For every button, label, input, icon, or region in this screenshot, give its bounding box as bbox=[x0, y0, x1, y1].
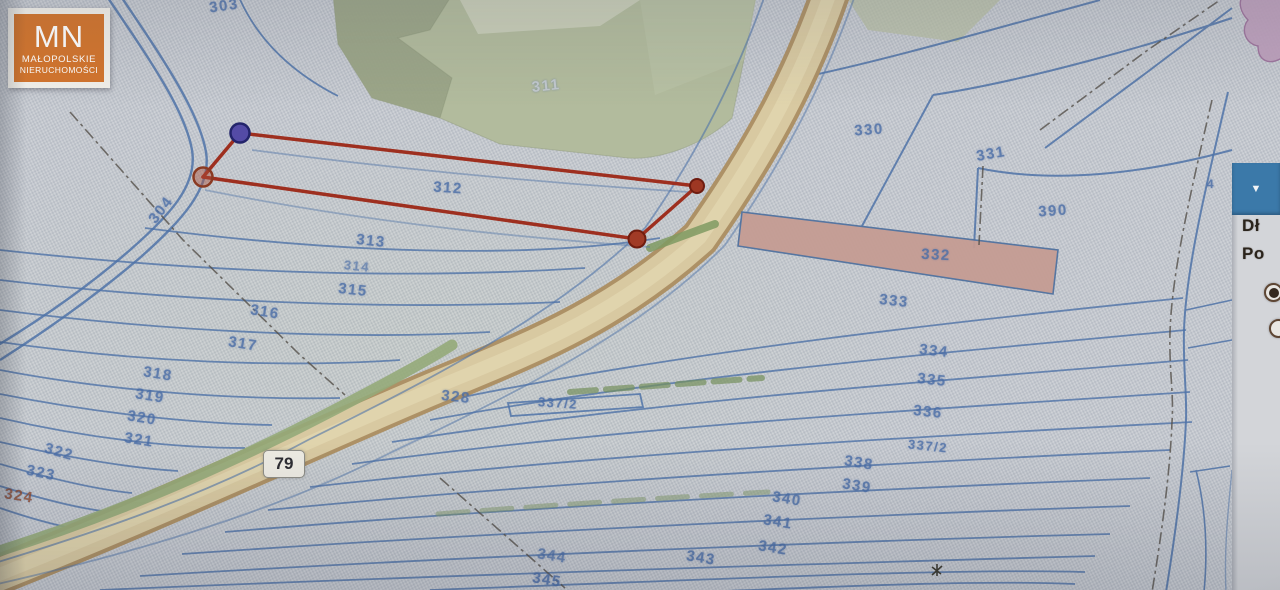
parcel-label-334: 334 bbox=[918, 341, 949, 361]
parcel-label-313: 313 bbox=[355, 231, 386, 251]
parcel-label-311: 311 bbox=[531, 76, 561, 96]
parcel-label-328: 328 bbox=[440, 387, 471, 407]
parcel-label-332: 332 bbox=[921, 246, 951, 265]
vertex-marker[interactable] bbox=[690, 179, 704, 193]
radio-option-1[interactable] bbox=[1264, 283, 1280, 302]
vertex-marker-active[interactable] bbox=[231, 124, 250, 143]
parcel-332-shape[interactable] bbox=[738, 212, 1058, 294]
forest-areas bbox=[333, 0, 1005, 158]
vertex-marker[interactable] bbox=[629, 231, 646, 248]
parcel-label-4: 4 bbox=[1207, 177, 1215, 191]
parcel-label-330: 330 bbox=[854, 120, 885, 139]
cadastral-map[interactable] bbox=[0, 0, 1280, 590]
forest-right-of-road bbox=[845, 0, 1005, 42]
boundary-right-edge bbox=[1166, 92, 1232, 590]
agency-logo-line2: NIERUCHOMOŚCI bbox=[20, 65, 98, 75]
parcel-label-335: 335 bbox=[916, 370, 947, 390]
panel-option-area-label: Po bbox=[1242, 244, 1265, 264]
vegetation-strips bbox=[438, 378, 768, 514]
map-viewport[interactable]: 3033113043123133143153163173183193203213… bbox=[0, 0, 1280, 590]
parcel-label-345: 345 bbox=[531, 569, 563, 590]
vertex-marker-hollow[interactable] bbox=[194, 168, 213, 187]
radio-option-2[interactable] bbox=[1269, 319, 1280, 338]
agency-logo-line1: MAŁOPOLSKIE bbox=[22, 54, 96, 65]
parcel-label-390: 390 bbox=[1038, 201, 1069, 220]
parcel-label-336: 336 bbox=[912, 402, 943, 422]
parcel-label-315: 315 bbox=[337, 280, 368, 300]
parcel-label-337-2: 337/2 bbox=[538, 394, 579, 412]
side-panel: ▼ Dł Po bbox=[1232, 163, 1280, 590]
panel-collapse-button[interactable]: ▼ bbox=[1232, 163, 1280, 215]
builtup-area-blob bbox=[1240, 0, 1280, 62]
road-number-badge: 79 bbox=[263, 450, 305, 478]
agency-logo: MN MAŁOPOLSKIE NIERUCHOMOŚCI bbox=[8, 8, 110, 88]
road-number: 79 bbox=[275, 454, 294, 474]
tree-symbol bbox=[932, 564, 942, 576]
parcel-label-312: 312 bbox=[433, 178, 464, 197]
chevron-down-icon: ▼ bbox=[1251, 183, 1262, 195]
parcel-label-333: 333 bbox=[878, 291, 909, 311]
parcel-label-314: 314 bbox=[343, 257, 371, 275]
agency-logo-box: MN MAŁOPOLSKIE NIERUCHOMOŚCI bbox=[14, 14, 104, 82]
agency-logo-initials: MN bbox=[34, 22, 84, 52]
panel-option-length-label: Dł bbox=[1242, 216, 1260, 236]
